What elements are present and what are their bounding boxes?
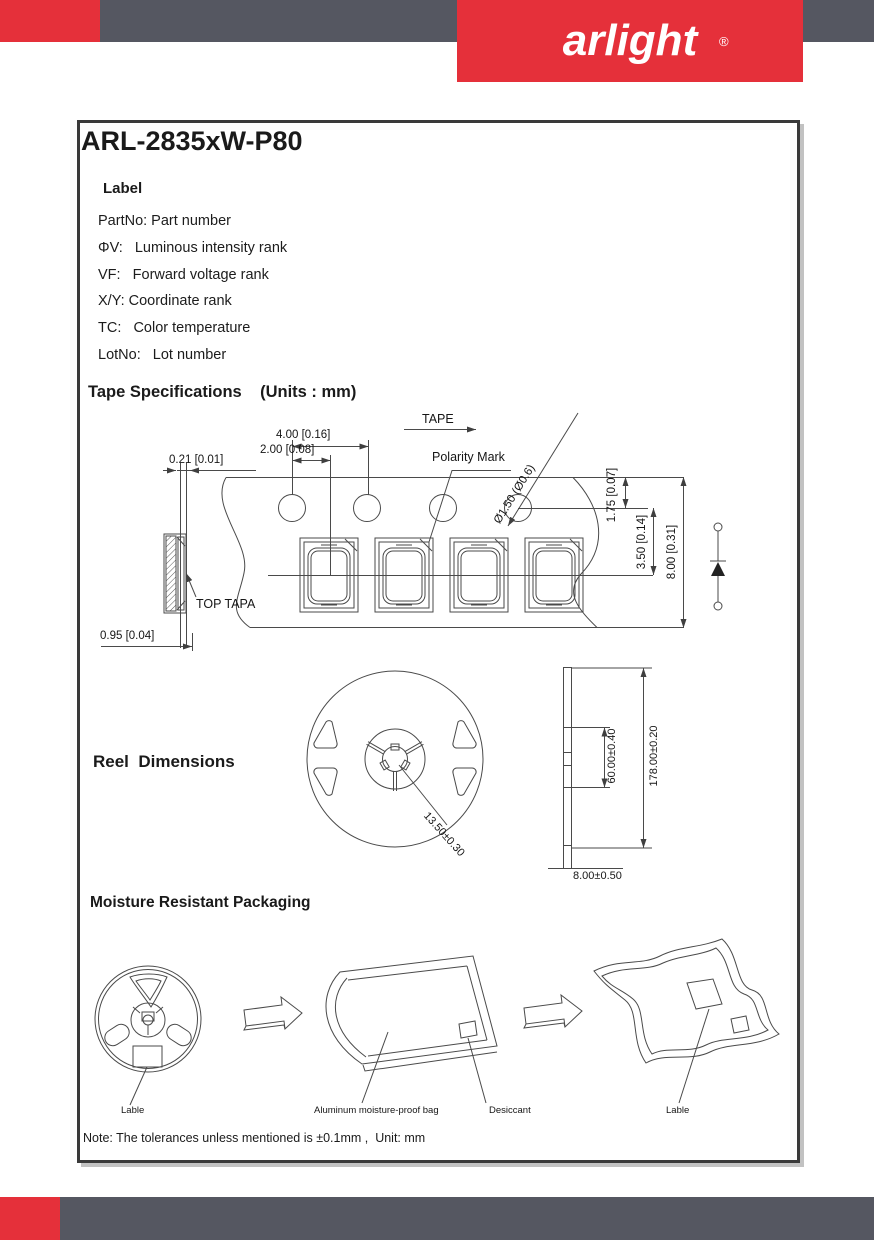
arrow-step-2	[524, 995, 582, 1028]
reel-side-view	[548, 667, 652, 869]
label-section-heading: Label	[103, 180, 142, 197]
tape-direction-label: TAPE	[422, 412, 454, 426]
tape-side-view	[101, 463, 256, 651]
dim-pitch-4: 4.00 [0.16]	[276, 429, 330, 441]
label-item-lotno: LotNo: Lot number	[98, 342, 287, 369]
top-tapa-label: TOP TAPA	[196, 597, 255, 611]
reel-label-caption: Lable	[121, 1105, 144, 1116]
dim-0-95: 0.95 [0.04]	[100, 630, 154, 642]
footer-gray-band	[60, 1197, 874, 1240]
dim-thickness: 0.21 [0.01]	[169, 454, 223, 466]
tape-section-heading: Tape Specifications (Units : mm)	[88, 383, 356, 402]
page-title: ARL-2835xW-P80	[81, 126, 303, 157]
dim-pitch-2: 2.00 [0.08]	[260, 444, 314, 456]
dim-1-75: 1.75 [0.07]	[606, 453, 618, 537]
footer-red-block	[0, 1197, 60, 1240]
desiccant-caption: Desiccant	[489, 1105, 531, 1116]
dim-reel-inner-width: 60.00±0.40	[606, 716, 618, 796]
label-item-vf: VF: Forward voltage rank	[98, 262, 287, 289]
label-definitions-list: PartNo: Part number ΦV: Luminous intensi…	[98, 208, 287, 369]
dim-reel-diameter: 178.00±0.20	[648, 712, 660, 800]
reel-front-view	[307, 671, 483, 847]
label-item-phiv: ΦV: Luminous intensity rank	[98, 235, 287, 262]
tolerance-note: Note: The tolerances unless mentioned is…	[83, 1131, 425, 1145]
sealed-bag-illustration	[594, 939, 779, 1103]
label-item-xy: X/Y: Coordinate rank	[98, 288, 287, 315]
packaging-bag-illustration	[326, 956, 497, 1103]
dim-reel-width: 8.00±0.50	[573, 870, 622, 882]
arrow-step-1	[244, 997, 302, 1030]
sealed-bag-label-caption: Lable	[666, 1105, 689, 1116]
bag-caption: Aluminum moisture-proof bag	[314, 1105, 439, 1116]
packaging-section-heading: Moisture Resistant Packaging	[90, 894, 311, 912]
packaging-reel-illustration	[95, 966, 201, 1105]
label-item-tc: TC: Color temperature	[98, 315, 287, 342]
diode-polarity-symbol	[710, 523, 726, 610]
dim-8-00: 8.00 [0.31]	[666, 510, 678, 594]
reel-section-heading: Reel Dimensions	[93, 752, 235, 772]
polarity-mark-label: Polarity Mark	[432, 450, 505, 464]
label-item-partno: PartNo: Part number	[98, 208, 287, 235]
dim-3-50: 3.50 [0.14]	[636, 500, 648, 584]
datasheet-canvas: arlight ®	[0, 0, 874, 1240]
